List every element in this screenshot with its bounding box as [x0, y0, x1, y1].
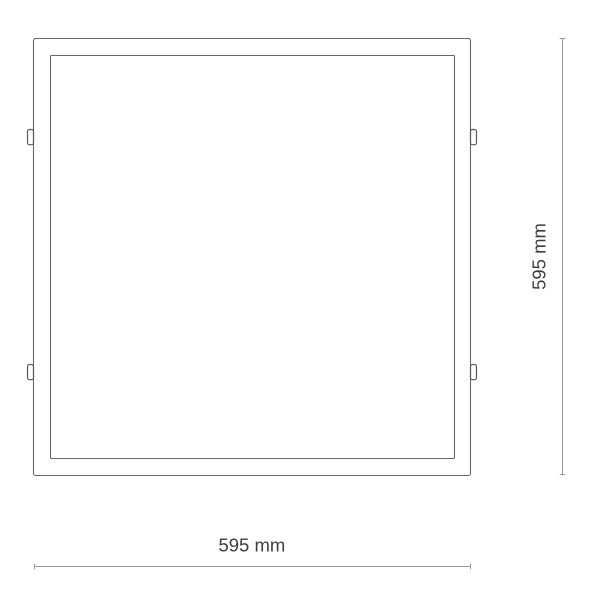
- svg-text:595 mm: 595 mm: [218, 534, 285, 555]
- svg-text:595 mm: 595 mm: [529, 223, 550, 290]
